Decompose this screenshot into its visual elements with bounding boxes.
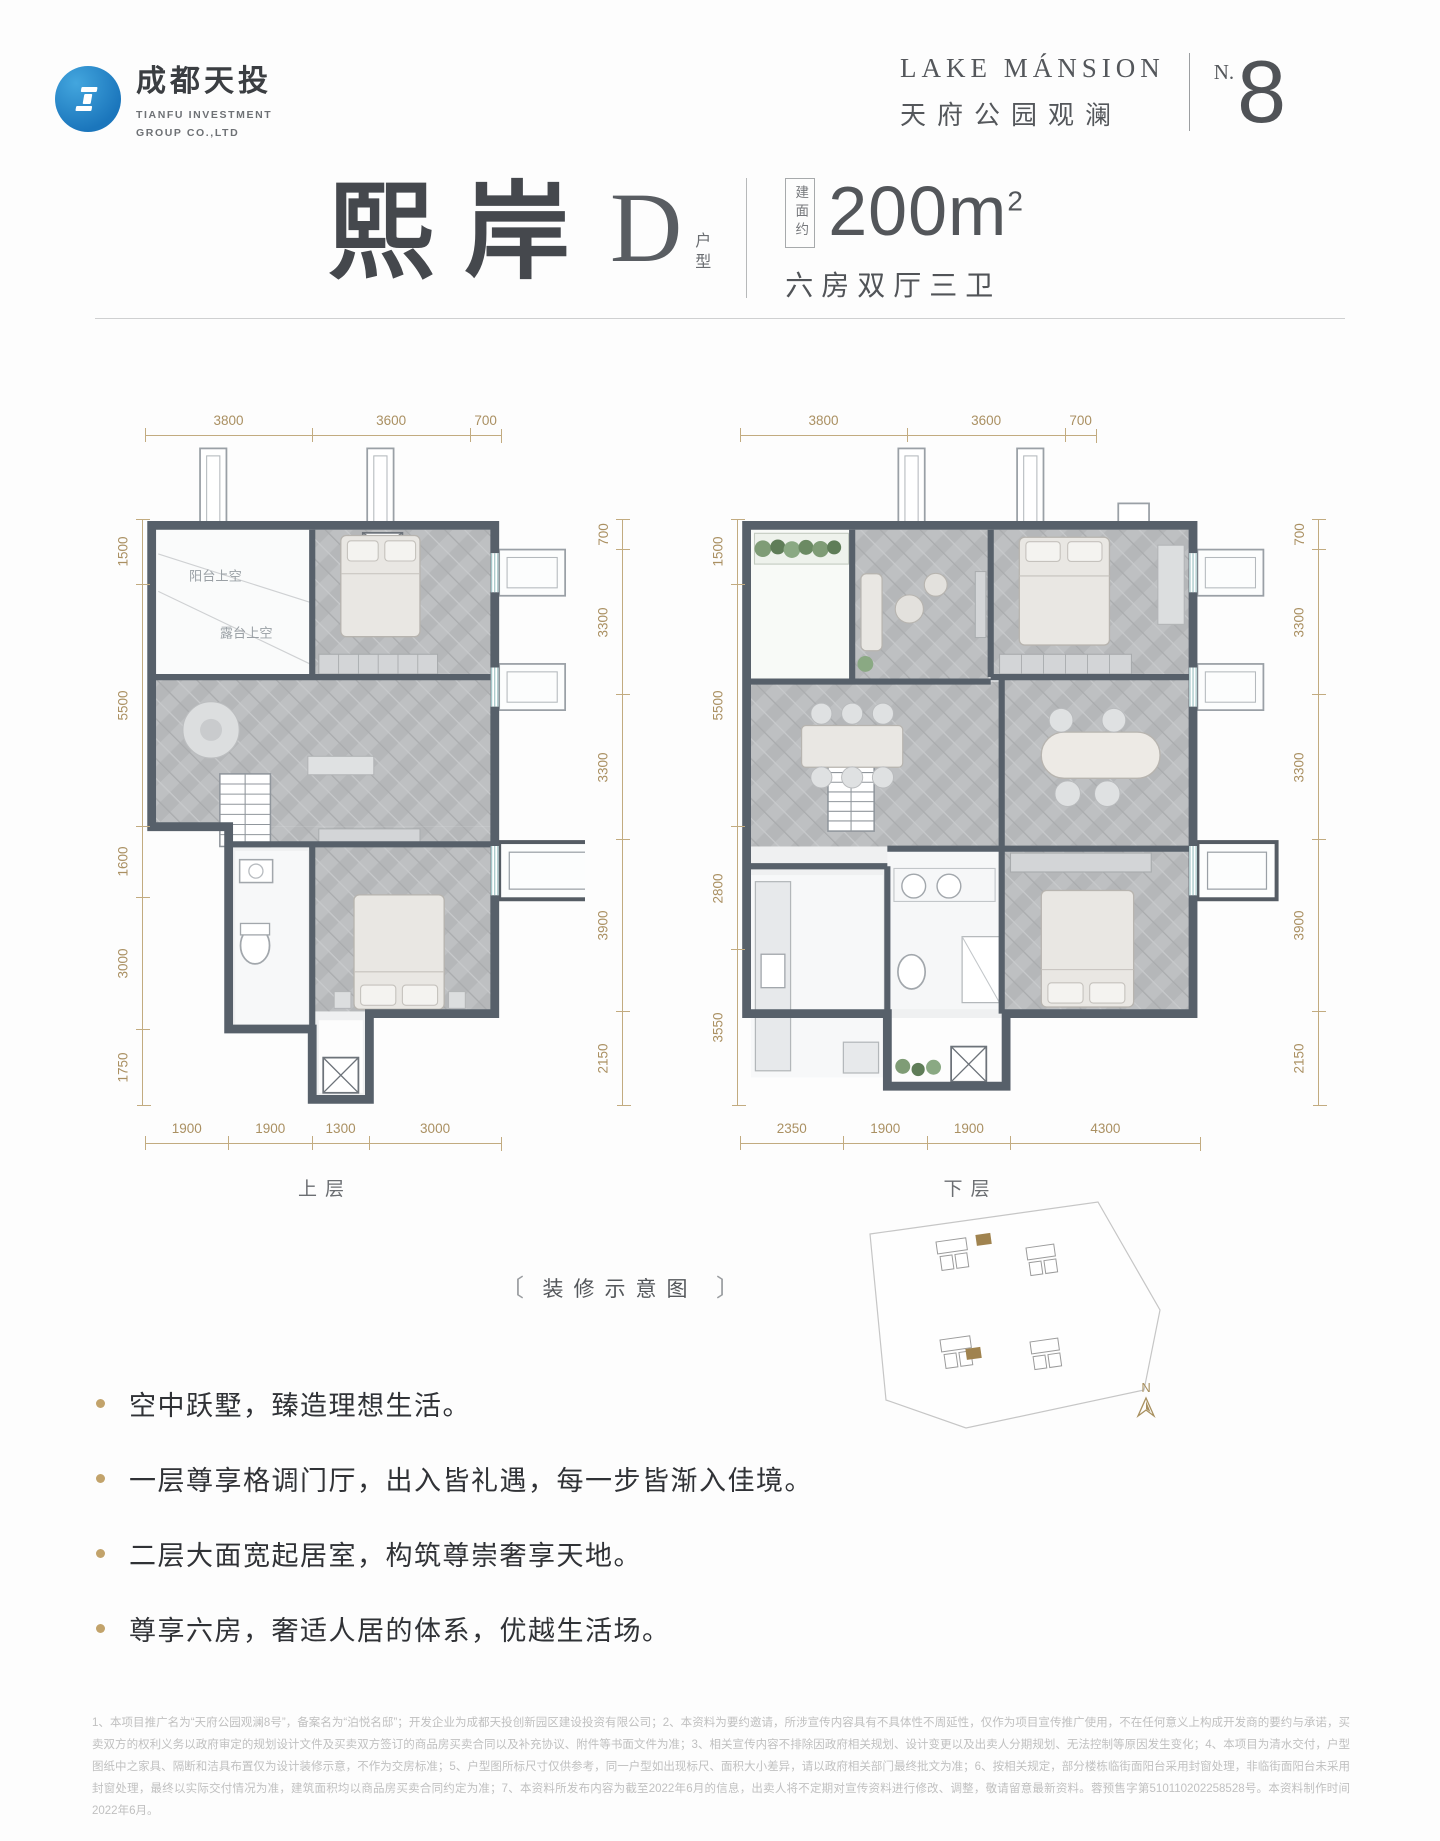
bullet-item: 二层大面宽起居室，构筑尊崇奢享天地。 xyxy=(96,1534,813,1573)
bullet-list: 空中跃墅，臻造理想生活。 一层尊享格调门厅，出入皆礼遇，每一步皆渐入佳境。 二层… xyxy=(96,1384,813,1684)
wardrobe-icon xyxy=(319,654,438,674)
dim-seg: 700 xyxy=(585,519,623,550)
floorplan-lower: 3800 3600 700 1500 5500 2800 3550 xyxy=(700,398,1321,1204)
project-brand: LAKE MÁNSION 天府公园观澜 N. 8 xyxy=(900,52,1286,133)
project-name-cn: 天府公园观澜 xyxy=(900,95,1165,132)
site-boundary xyxy=(870,1202,1160,1428)
dim-seg: 4300 xyxy=(1011,1114,1200,1144)
dim-seg: 3300 xyxy=(1281,550,1319,695)
page: { "brand": { "name_cn": "成都天投", "name_en… xyxy=(0,0,1440,1841)
porch xyxy=(892,1018,1002,1082)
plan-label-upper: 上层 xyxy=(298,1179,352,1200)
dim-seg: 700 xyxy=(1281,519,1319,550)
company-name-en: TIANFU INVESTMENT GROUP CO.,LTD xyxy=(136,107,272,143)
unit-type-suffix: 户型 xyxy=(688,232,712,278)
area-value: 200m2 xyxy=(828,178,1024,245)
bathroom xyxy=(235,851,308,1025)
dim-seg: 3800 xyxy=(740,406,907,436)
dim-col-right: 700 3300 3300 3900 2150 xyxy=(1281,444,1321,1106)
toilet-icon xyxy=(898,955,925,989)
bullet-text: 二层大面宽起居室，构筑尊崇奢享天地。 xyxy=(129,1534,642,1573)
dim-seg: 2350 xyxy=(740,1114,843,1144)
dim-seg: 3300 xyxy=(1281,695,1319,840)
dim-seg: 1900 xyxy=(843,1114,927,1144)
dim-row-bottom: 1900 1900 1300 3000 xyxy=(145,1106,585,1152)
bed-icon xyxy=(341,535,420,636)
balcony-shaft-icon xyxy=(200,448,394,532)
company-logo: 成都天投 TIANFU INVESTMENT GROUP CO.,LTD xyxy=(55,56,272,143)
lightwell xyxy=(319,1020,363,1093)
caption-bracket-left: 〔 xyxy=(500,1275,524,1302)
balcony xyxy=(1197,550,1276,900)
brand-divider xyxy=(1189,53,1190,131)
tianfu-logo-icon xyxy=(55,66,121,132)
dim-seg: 1500 xyxy=(105,519,143,585)
bullet-dot-icon xyxy=(96,1624,105,1633)
bullet-text: 尊享六房，奢适人居的体系，优越生活场。 xyxy=(129,1609,671,1648)
dim-seg: 2150 xyxy=(1281,1011,1319,1106)
compass-icon: N xyxy=(1138,1380,1154,1416)
dim-seg: 3300 xyxy=(585,695,623,840)
dim-col-left: 1500 5500 1600 3000 1750 xyxy=(105,444,145,1106)
kitchen xyxy=(751,875,883,1077)
layout-spec: 六房双厅三卫 xyxy=(785,264,1024,304)
project-number: N. 8 xyxy=(1214,52,1286,133)
dim-seg: 5500 xyxy=(700,585,738,827)
unit-name: 熙岸 xyxy=(328,178,600,289)
dim-seg: 1900 xyxy=(927,1114,1011,1144)
dim-seg: 2150 xyxy=(585,1011,623,1106)
site-plan: N xyxy=(848,1192,1178,1447)
dim-seg: 700 xyxy=(1065,406,1096,436)
bathroom xyxy=(887,851,1001,1009)
dim-seg: 3900 xyxy=(1281,840,1319,1011)
title-rule xyxy=(95,318,1345,319)
caption-text: 装修示意图 xyxy=(543,1278,698,1301)
svg-text:阳台上空: 阳台上空 xyxy=(189,568,242,583)
company-name: 成都天投 xyxy=(136,56,272,100)
bullet-dot-icon xyxy=(96,1474,105,1483)
area-prefix-badge: 建面约 xyxy=(785,178,815,248)
dim-seg: 1750 xyxy=(105,1029,143,1106)
dim-row-top: 3800 3600 700 xyxy=(145,398,585,444)
dim-row-bottom: 2350 1900 1900 4300 xyxy=(740,1106,1281,1152)
bullet-text: 一层尊享格调门厅，出入皆礼遇，每一步皆渐入佳境。 xyxy=(129,1459,813,1498)
dim-seg: 1900 xyxy=(145,1114,229,1144)
dim-col-left: 1500 5500 2800 3550 xyxy=(700,444,740,1106)
void-area: 阳台上空 露台上空 xyxy=(156,530,312,677)
floorplan-drawing-lower xyxy=(740,444,1281,1106)
svg-text:露台上空: 露台上空 xyxy=(220,626,273,641)
dining-table-icon xyxy=(802,703,903,788)
dim-seg: 3600 xyxy=(312,406,470,436)
svg-text:N: N xyxy=(1141,1380,1150,1395)
dim-seg: 1500 xyxy=(700,519,738,585)
disclaimer-text: 1、本项目推广名为“天府公园观澜8号”，备案名为“泊悦名邸”；开发企业为成都天投… xyxy=(92,1712,1350,1822)
dim-seg: 3000 xyxy=(369,1114,501,1144)
unit-type: D xyxy=(610,178,682,278)
wardrobe-icon xyxy=(1000,654,1132,674)
dim-seg: 3000 xyxy=(105,897,143,1029)
terrace xyxy=(751,530,852,682)
bullet-item: 一层尊享格调门厅，出入皆礼遇，每一步皆渐入佳境。 xyxy=(96,1459,813,1498)
floorplan-upper: 3800 3600 700 1500 5500 1600 3000 1750 xyxy=(105,398,625,1204)
dim-seg: 3600 xyxy=(907,406,1065,436)
bullet-item: 空中跃墅，臻造理想生活。 xyxy=(96,1384,813,1423)
title-divider xyxy=(746,178,747,298)
bullet-text: 空中跃墅，臻造理想生活。 xyxy=(129,1384,471,1423)
dim-seg: 1600 xyxy=(105,827,143,897)
dim-seg: 1300 xyxy=(312,1114,369,1144)
balcony xyxy=(499,550,585,900)
floorplan-drawing-upper: 阳台上空 露台上空 xyxy=(145,444,585,1106)
bullet-dot-icon xyxy=(96,1399,105,1408)
unit-title: 熙岸 D 户型 建面约 200m2 六房双厅三卫 xyxy=(328,178,1024,304)
caption-bracket-right: 〕 xyxy=(716,1275,740,1302)
dim-seg: 3300 xyxy=(585,550,623,695)
dim-seg: 3800 xyxy=(145,406,312,436)
dim-seg: 3900 xyxy=(585,840,623,1011)
bullet-item: 尊享六房，奢适人居的体系，优越生活场。 xyxy=(96,1609,813,1648)
project-name-en: LAKE MÁNSION xyxy=(900,53,1165,84)
dim-seg: 2800 xyxy=(700,827,738,950)
dim-seg: 3550 xyxy=(700,950,738,1106)
bullet-dot-icon xyxy=(96,1549,105,1558)
dim-seg: 5500 xyxy=(105,585,143,827)
dim-seg: 1900 xyxy=(229,1114,313,1144)
dim-seg: 700 xyxy=(470,406,501,436)
dim-col-right: 700 3300 3300 3900 2150 xyxy=(585,444,625,1106)
site-plan-drawing: N xyxy=(848,1192,1178,1442)
dim-row-top: 3800 3600 700 xyxy=(740,398,1281,444)
